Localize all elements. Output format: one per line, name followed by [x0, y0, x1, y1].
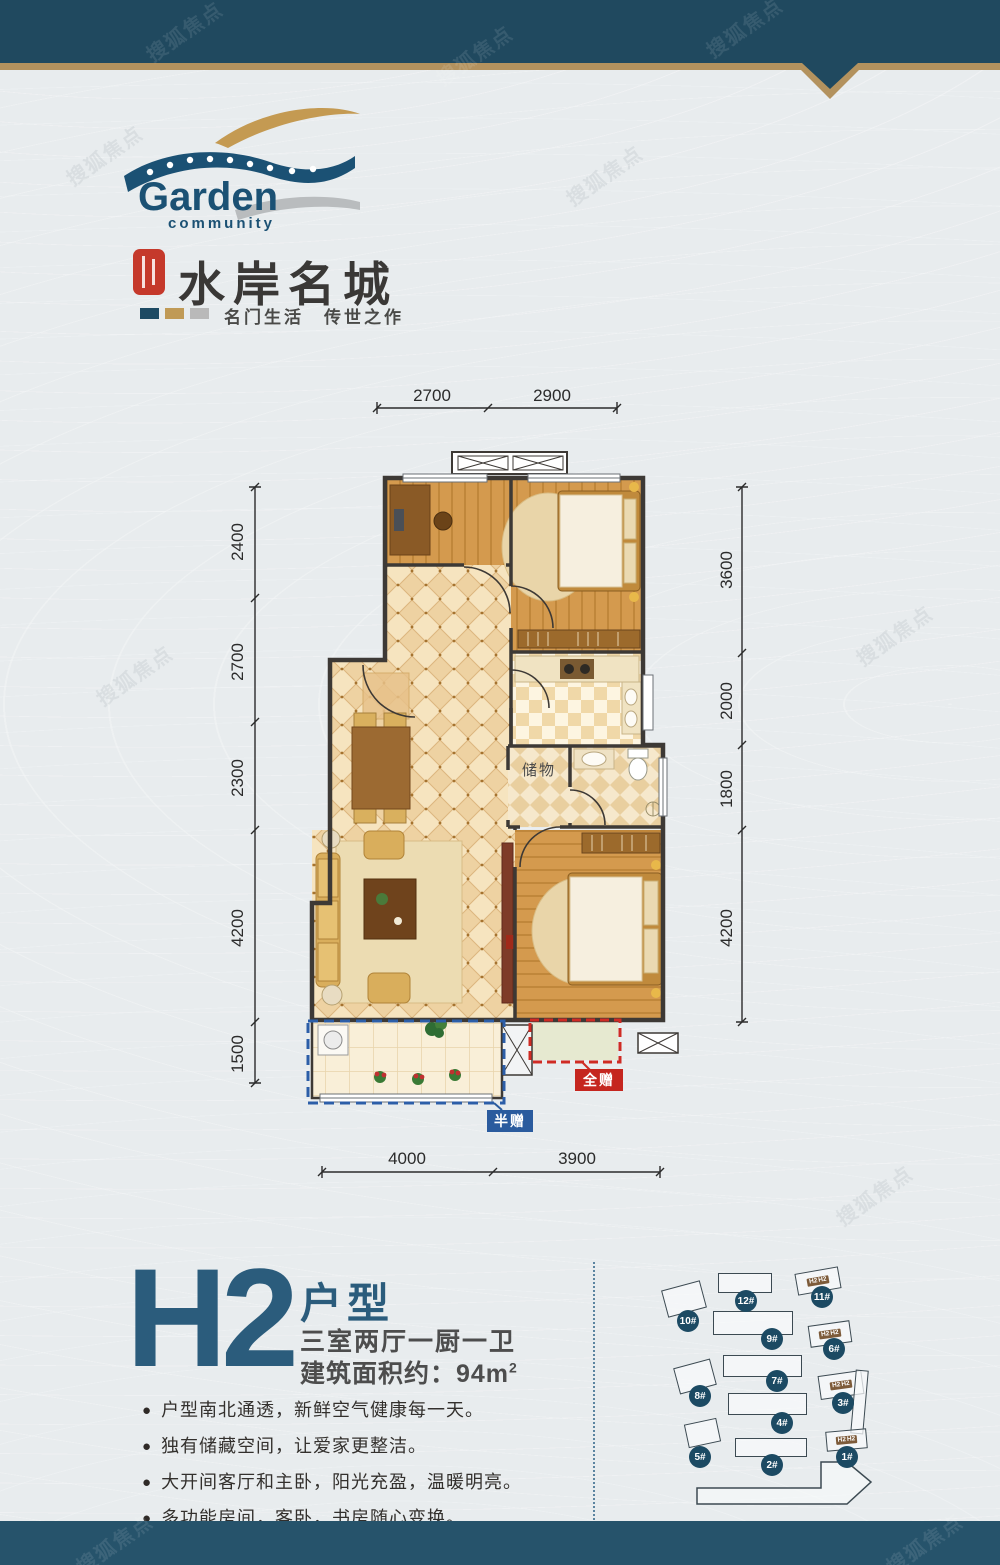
brand-square-gray: [190, 308, 209, 319]
dim-left-5: 1500: [230, 1035, 247, 1073]
area-sup: 2: [509, 1360, 518, 1376]
floorplan-drawing: 全赠 半赠 储物 2700 2900 2400 2700 2300 4200 1…: [230, 375, 750, 1185]
selling-point: 户型南北通透，新鲜空气健康每一天。: [142, 1396, 522, 1422]
building-badge-5: 5#: [689, 1446, 711, 1468]
wardrobe: [518, 630, 640, 648]
half-gift-label: 半赠: [494, 1113, 526, 1129]
storage-label: 储物: [522, 762, 556, 779]
dim-top-1: 2700: [413, 386, 451, 405]
building-5: [684, 1418, 721, 1448]
rooms-summary: 三室两厅一厨一卫: [300, 1322, 516, 1358]
building-badge-7: 7#: [766, 1370, 788, 1392]
watermark: 搜狐焦点: [560, 137, 649, 211]
building-badge-1: 1#: [836, 1446, 858, 1468]
storage-room: [508, 746, 570, 827]
commercial-strip: [695, 1458, 880, 1516]
watermark: 搜狐焦点: [830, 1157, 919, 1231]
gift-area-floor: [532, 1022, 618, 1060]
site-plan: H2H2 H2H2 H2H2 H2H2 1# 2# 3# 4# 5# 6# 7#…: [600, 1262, 1000, 1540]
brand-tagline: 名门生活 传世之作: [224, 303, 404, 328]
building-9: [713, 1311, 793, 1335]
dim-bottom-1: 4000: [388, 1149, 426, 1168]
dim-right-4: 4200: [717, 909, 736, 947]
selling-point: 大开间客厅和主卧，阳光充盈，温暖明亮。: [142, 1468, 522, 1494]
dim-right-3: 1800: [717, 770, 736, 808]
dim-top-2: 2900: [533, 386, 571, 405]
building-7: [723, 1355, 802, 1377]
red-seal-icon: [133, 249, 165, 295]
wardrobe: [582, 833, 660, 853]
area-text: 建筑面积约：94m: [300, 1360, 509, 1388]
building-badge-10: 10#: [677, 1310, 699, 1332]
watermark: 搜狐焦点: [90, 637, 179, 711]
building-badge-2: 2#: [761, 1454, 783, 1476]
logo-name: Garden: [138, 175, 278, 219]
divider-dotted-line: [593, 1262, 595, 1540]
dim-left-3: 2300: [230, 759, 247, 797]
building-badge-11: 11#: [811, 1286, 833, 1308]
building-badge-4: 4#: [771, 1412, 793, 1434]
building-badge-12: 12#: [735, 1290, 757, 1312]
full-gift-label: 全赠: [582, 1072, 615, 1088]
area-summary: 建筑面积约：94m2: [300, 1354, 518, 1390]
dim-right-2: 2000: [717, 682, 736, 720]
building-badge-8: 8#: [689, 1385, 711, 1407]
tv-cabinet: [502, 843, 513, 1003]
selling-point: 独有储藏空间，让爱家更整洁。: [142, 1432, 522, 1458]
brand-square-blue: [140, 308, 159, 319]
brand-square-gold: [165, 308, 184, 319]
building-badge-9: 9#: [761, 1328, 783, 1350]
dim-bottom-2: 3900: [558, 1149, 596, 1168]
dim-right-1: 3600: [717, 551, 736, 589]
logo-gold-wave: [215, 108, 360, 148]
unit-code: H2: [126, 1248, 293, 1388]
h2-unit-chip: H2H2: [835, 1435, 857, 1445]
selling-points: 户型南北通透，新鲜空气健康每一天。 独有储藏空间，让爱家更整洁。 大开间客厅和主…: [142, 1396, 522, 1540]
garden-community-logo: Garden community: [110, 98, 380, 233]
logo-subname: community: [168, 215, 275, 232]
dim-left-2: 2700: [230, 643, 247, 681]
building-badge-6: 6#: [823, 1338, 845, 1360]
h2-unit-chip: H2H2: [830, 1379, 853, 1390]
h2-unit-chip: H2H2: [807, 1275, 830, 1287]
dim-left-4: 4200: [230, 909, 247, 947]
dim-left-1: 2400: [230, 523, 247, 561]
floorplan-poster: 搜狐焦点 搜狐焦点 搜狐焦点 搜狐焦点 搜狐焦点 搜狐焦点 搜狐焦点 搜狐焦点 …: [0, 0, 1000, 1565]
header-notch: [790, 63, 870, 105]
watermark: 搜狐焦点: [850, 597, 939, 671]
building-badge-3: 3#: [832, 1392, 854, 1414]
building-4: [728, 1393, 807, 1415]
